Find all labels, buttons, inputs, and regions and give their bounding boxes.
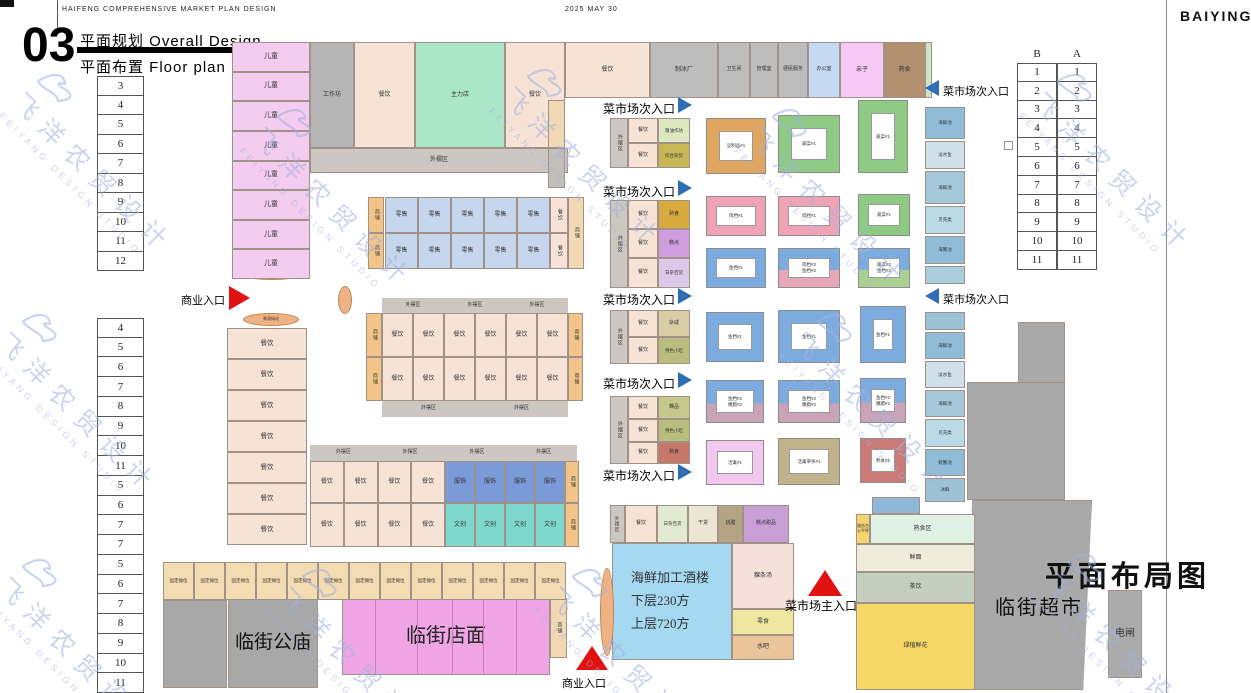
retail-grid-cell: 零售	[385, 197, 418, 233]
poultry-stall: 活禽#1	[706, 440, 764, 485]
fish-stall: 鱼档#1	[778, 310, 840, 363]
dining-column-cell: 餐饮	[227, 390, 307, 421]
meat-stall-counter: 肉档#1	[716, 206, 756, 226]
children-shop-column-cell: 儿童	[232, 190, 310, 220]
left-table-bottom-row: 4	[97, 318, 144, 338]
retail-grid-cell: 零售	[418, 233, 451, 269]
shop-divider	[452, 599, 453, 674]
street-temple: 临街公庙	[228, 598, 318, 688]
left-table-bottom-row: 11	[97, 673, 144, 693]
fixed-stall-row-cell: 固定摊位	[287, 562, 318, 600]
freshwater-fish-tank: 淡水鱼	[925, 361, 965, 388]
left-table-bottom-row: 8	[97, 397, 144, 417]
market-sub-entrance-label: 菜市场次入口	[943, 291, 1009, 307]
fixed-stall-row-cell: 固定摊位	[535, 562, 566, 600]
fish-cured-stall-label: 腌腊#2	[876, 401, 890, 407]
seafood-tank: 海鲜池	[925, 332, 965, 359]
cultural-creative-grid-cell: 文创	[475, 503, 505, 547]
seafood-restaurant: 海鲜加工酒楼下层230方上层720方	[612, 543, 732, 660]
parent-child: 亲子	[840, 42, 884, 98]
dining: 餐饮	[628, 419, 658, 442]
freshwater-fish-tank: 淡水鱼	[925, 141, 965, 169]
market-sub-entrance-label: 菜市场次入口	[603, 375, 675, 392]
outdoor-area: 外摆区	[610, 118, 628, 168]
restroom: 卫生间	[718, 42, 750, 98]
utility	[548, 148, 565, 188]
left-table-bottom-row: 6	[97, 357, 144, 377]
fish-stall: 鱼档#1	[860, 306, 906, 363]
shop-booth-label: 商铺	[573, 227, 579, 239]
dining-grid-mid-cell: 餐饮	[475, 313, 506, 357]
market-sub-entrance-arrow	[678, 372, 692, 388]
vegetable-fish-stall: 蔬菜#2鱼档#2	[858, 248, 910, 288]
shop-booth: 商铺	[568, 313, 583, 357]
tofu-stall-label: 豆制品#1	[727, 143, 746, 149]
feiyang-logo-icon	[17, 545, 72, 600]
vegetable-stall-label: 蔬菜#1	[802, 141, 816, 147]
outdoor-strip-cell: 外摆区	[506, 298, 568, 313]
right-table-cell: 3	[1057, 101, 1097, 120]
dining: 餐饮	[628, 442, 658, 464]
dining-grid-low1-cell: 餐饮	[411, 461, 445, 503]
vegetable-stall: 蔬菜#1	[858, 100, 908, 173]
convenience-service: 便民服务	[778, 42, 808, 98]
dining-grid-mid-cell: 餐饮	[506, 313, 537, 357]
dining-label: 餐饮	[556, 209, 562, 221]
workshop: 工作坊	[310, 42, 354, 148]
left-table-bottom-row: 6	[97, 575, 144, 595]
dining-grid-low1-cell: 餐饮	[378, 461, 412, 503]
crab-tank: 海蟹池	[925, 236, 965, 264]
outdoor-strip-cell: 外摆区	[377, 445, 444, 461]
dining-grid-mid-cell: 餐饮	[537, 313, 568, 357]
shop-divider	[483, 599, 484, 674]
daily-goods: 日杂百货	[658, 258, 690, 288]
fresh-noodles: 鲜面	[856, 544, 975, 572]
dining-column-cell: 餐饮	[227, 328, 307, 359]
apparel-grid-cell: 服饰	[535, 461, 565, 503]
left-table-bottom-row: 8	[97, 614, 144, 634]
outdoor-area: 外摆区	[610, 505, 625, 543]
supermarket-mid	[967, 382, 1065, 500]
fixed-stall-row-cell: 固定摊位	[411, 562, 442, 600]
right-table-cell: 10	[1057, 232, 1097, 251]
meat-fish-stall-counter: 肉档#2鱼档#2	[788, 258, 830, 278]
children-shop-column-cell: 儿童	[232, 249, 310, 279]
right-table-cell: 2	[1017, 82, 1057, 101]
retail-grid-cell: 零售	[418, 197, 451, 233]
dining: 餐饮	[628, 118, 658, 143]
shop-booth-label: 商铺	[569, 519, 575, 531]
dining-grid-mid-cell: 餐饮	[444, 357, 475, 401]
cooked-food: 熟食	[658, 200, 690, 229]
left-table-bottom-row: 7	[97, 535, 144, 555]
fixed-stall-row-cell: 固定摊位	[225, 562, 256, 600]
poultry-stall-counter: 活禽#1	[717, 451, 753, 474]
floor-plan-slide: HAIFENG COMPREHENSIVE MARKET PLAN DESIGN…	[0, 0, 1251, 693]
retail-grid-cell: 零售	[385, 233, 418, 269]
outdoor-area: 外摆区	[610, 396, 628, 464]
fixed-stall-row-cell: 固定摊位	[194, 562, 225, 600]
fish-cured-stall-counter: 鱼档#2腌腊#2	[788, 390, 830, 413]
dining: 餐饮	[628, 200, 658, 229]
vegetable-stall-counter: 蔬菜#1	[791, 128, 827, 160]
shellfish-tank: 贝壳类	[925, 419, 965, 447]
shop-booth-label: 商铺	[373, 209, 379, 221]
market-sub-entrance-label: 菜市场次入口	[603, 183, 675, 200]
dining-column-cell: 餐饮	[227, 514, 307, 545]
street-supermarket-label: 临街超市	[995, 592, 1083, 618]
outdoor-area: 外摆区	[310, 148, 568, 173]
seafood-restaurant-label: 海鲜加工酒楼	[631, 571, 709, 586]
dessert-shop: 糕点甜品	[743, 505, 789, 543]
left-table-top-row: 5	[97, 115, 144, 135]
shop-booth-label: 商铺	[371, 329, 377, 341]
shop-booth: 商铺	[366, 313, 382, 357]
outdoor-strip-cell: 外摆区	[444, 445, 511, 461]
dining-grid-low2-cell: 餐饮	[411, 503, 445, 547]
market-sub-entrance-label: 菜市场次入口	[603, 291, 675, 308]
cooked-food-stall-label: 熟食#1	[876, 458, 890, 464]
children-shop-column-cell: 儿童	[232, 72, 310, 102]
dining-grid-mid-cell: 餐饮	[506, 357, 537, 401]
right-table-header: B	[1017, 45, 1057, 62]
feiyang-logo-icon	[17, 300, 72, 355]
dining-grid-low2-cell: 餐饮	[310, 503, 344, 547]
left-table-bottom-row: 10	[97, 654, 144, 674]
meat-stall: 肉档#1	[706, 196, 766, 236]
outdoor-strip-cell: 外摆区	[310, 445, 377, 461]
fish-stall-counter: 鱼档#1	[791, 323, 827, 350]
vegetable-stall-counter: 蔬菜#1	[871, 113, 895, 160]
left-table-top-row: 9	[97, 193, 144, 213]
shop-divider	[417, 599, 418, 674]
market-sub-entrance-arrow	[925, 80, 939, 96]
right-table-cell: 8	[1017, 195, 1057, 214]
fixed-stall-row-cell: 固定摊位	[473, 562, 504, 600]
retail-grid-cell: 零售	[517, 233, 550, 269]
commercial-entrance-label: 商业入口	[562, 675, 606, 691]
left-table-top-row: 3	[97, 76, 144, 96]
dining-grid-mid-cell: 餐饮	[537, 357, 568, 401]
roast-meats: 烧腊	[718, 505, 743, 543]
meat-stall: 肉档#1	[778, 196, 840, 236]
right-table-header: A	[1057, 45, 1097, 62]
dining: 餐饮	[628, 258, 658, 288]
dining: 餐饮	[565, 42, 650, 98]
retail-grid-cell: 零售	[451, 197, 484, 233]
legend-box	[1004, 141, 1013, 150]
market-sub-entrance-label: 菜市场次入口	[603, 100, 675, 117]
ice-room: 制冰厂	[650, 42, 718, 98]
market-sub-entrance-arrow	[678, 464, 692, 480]
left-table-bottom-row: 10	[97, 436, 144, 456]
shop-booth-label: 商铺	[573, 329, 579, 341]
cultural-creative-grid-cell: 文创	[505, 503, 535, 547]
fixed-stall-row-cell: 固定摊位	[504, 562, 535, 600]
outdoor-area: 外摆区	[610, 310, 628, 364]
right-table-cell: 1	[1017, 63, 1057, 82]
feiyang-logo-icon	[32, 60, 87, 115]
retail-grid-cell: 零售	[484, 233, 517, 269]
street-shops: 临街店面	[342, 598, 550, 675]
office: 办公室	[808, 42, 840, 98]
meat-stall-label: 肉档#1	[802, 213, 816, 219]
vegetable-stall: 蔬菜#1	[778, 115, 840, 173]
right-table-cell: 1	[1057, 63, 1097, 82]
fish-cured-stall: 鱼档#2腌腊#2	[860, 378, 906, 423]
shop-booth: 商铺	[568, 197, 584, 269]
left-table-bottom-row: 11	[97, 456, 144, 476]
outdoor-area-label: 外摆区	[615, 516, 620, 533]
market-sub-entrance-label: 菜市场次入口	[943, 83, 1009, 99]
shop-booth: 商铺	[568, 357, 583, 401]
dining: 餐饮	[550, 197, 568, 233]
fixed-stall-row-cell: 固定摊位	[256, 562, 287, 600]
meat-stall-counter: 肉档#1	[788, 206, 830, 226]
right-table-cell: 9	[1057, 213, 1097, 232]
commercial-entrance-arrow	[229, 286, 250, 310]
apparel-grid-cell: 服饰	[505, 461, 535, 503]
fish-cured-stall-label: 腌腊#2	[802, 402, 816, 408]
crab-tank: 螃蟹池	[925, 449, 965, 476]
outdoor-area-label: 外摆区	[616, 328, 622, 346]
layout-diagram-title: 平面布局图	[1045, 556, 1210, 592]
fish-stall: 鱼档#1	[706, 312, 764, 362]
right-table-cell: 7	[1017, 176, 1057, 195]
plants-flowers: 绿植鲜花	[856, 603, 975, 690]
outdoor-strip-cell: 外摆区	[444, 298, 506, 313]
outdoor-area-label: 外摆区	[616, 421, 622, 439]
cultural-creative-grid-cell: 文创	[535, 503, 565, 547]
dining: 餐饮	[628, 337, 658, 364]
market-sub-entrance-arrow	[678, 97, 692, 113]
shop-booth: 商铺	[368, 197, 384, 233]
retail-grid-cell: 零售	[451, 233, 484, 269]
outdoor-area-label: 外摆区	[616, 134, 622, 152]
outdoor-area: 外摆区	[610, 200, 628, 288]
watermark-cn: 飞洋农贸设计	[6, 84, 184, 262]
cooked-food-area: 熟食区	[870, 514, 975, 544]
cultural-creative-grid-cell: 文创	[445, 503, 475, 547]
grain-oil-workshop: 粮油作坊	[658, 118, 690, 143]
left-table-top-row: 6	[97, 135, 144, 155]
dining-column-cell: 餐饮	[227, 359, 307, 390]
dining-column-cell: 餐饮	[227, 421, 307, 452]
dining-grid-mid-cell: 餐饮	[382, 357, 413, 401]
vegetable-stall-label: 蔬菜#1	[876, 134, 890, 140]
market-main-entrance-label: 菜市场主入口	[785, 597, 857, 614]
right-table-cell: 6	[1017, 157, 1057, 176]
daily-goods: 日杂百货	[657, 505, 688, 543]
fish-cured-stall-counter: 鱼档#2腌腊#2	[716, 390, 754, 413]
vegetable-fish-stall-counter: 蔬菜#2鱼档#2	[868, 258, 900, 278]
service-desk: 服务台公平秤	[856, 514, 870, 544]
fish-stall-counter: 鱼档#1	[718, 324, 752, 350]
left-table-bottom-row: 7	[97, 377, 144, 397]
fixed-stall-row-cell: 固定摊位	[163, 562, 194, 600]
children-shop-column-cell: 儿童	[232, 161, 310, 191]
left-table-bottom-row: 5	[97, 476, 144, 496]
anchor-store: 主力店	[415, 42, 505, 148]
fish-cured-stall-counter: 鱼档#2腌腊#2	[871, 389, 895, 412]
left-table-top-row: 12	[97, 252, 144, 272]
right-table-cell: 10	[1017, 232, 1057, 251]
dining-label: 餐饮	[556, 245, 562, 257]
management-room: 管理室	[750, 42, 778, 98]
fish-stall-label: 鱼档#1	[729, 265, 743, 271]
apparel-grid-cell: 服饰	[475, 461, 505, 503]
left-table-top-row: 4	[97, 96, 144, 116]
right-table-cell: 11	[1017, 251, 1057, 270]
ice-fresh-tank: 冰鲜	[925, 478, 965, 502]
right-table-cell: 5	[1017, 138, 1057, 157]
dining: 餐饮	[550, 233, 568, 269]
poultry-stall-label: 活禽#1	[728, 460, 742, 466]
left-table-top-row: 8	[97, 174, 144, 194]
water-bar: 水吧	[732, 635, 794, 660]
fish-cured-stall-label: 腌腊#2	[728, 402, 742, 408]
fixed-stall-row-cell: 固定摊位	[349, 562, 380, 600]
dining: 餐饮	[628, 229, 658, 258]
poultry-slaughter-stall: 活禽宰杀#1	[778, 438, 840, 485]
shop-booth: 商铺	[368, 233, 384, 269]
seafood-tank: 海鲜池	[925, 171, 965, 204]
left-table-bottom-row: 6	[97, 496, 144, 516]
right-table-cell: 11	[1057, 251, 1097, 270]
fixed-stall-row-cell: 固定摊位	[318, 562, 349, 600]
dry-goods: 干货	[688, 505, 718, 543]
right-table-cell: 4	[1057, 119, 1097, 138]
dining: 餐饮	[628, 143, 658, 168]
left-table-bottom-row: 5	[97, 555, 144, 575]
fish-stall-counter: 鱼档#1	[873, 319, 893, 350]
dining: 餐饮	[354, 42, 415, 148]
children-shop-column-cell: 儿童	[232, 42, 310, 72]
poultry-slaughter-stall-label: 活禽宰杀#1	[797, 459, 820, 465]
local-snacks: 特色小吃	[658, 419, 690, 442]
landscape-green: 景观绿化	[243, 313, 299, 326]
left-table-top-row: 10	[97, 213, 144, 233]
vegetable-stall-label: 蔬菜#1	[877, 212, 891, 218]
shop-booth-label: 商铺	[569, 476, 575, 488]
shop-divider	[516, 599, 517, 674]
left-table-top-row: 7	[97, 154, 144, 174]
commercial-entrance-label: 商业入口	[181, 292, 225, 308]
dining-grid-mid-cell: 餐饮	[382, 313, 413, 357]
shop-booth-label: 商铺	[371, 373, 377, 385]
commercial-entrance-arrow	[576, 646, 608, 670]
outdoor-strip-cell: 外摆区	[475, 401, 568, 417]
seafood-restaurant-label: 上层720方	[631, 617, 690, 632]
dining-grid-mid-cell: 餐饮	[413, 357, 444, 401]
outdoor-area-label: 外摆区	[616, 235, 622, 253]
shop-booth-label: 商铺	[573, 373, 579, 385]
supermarket-upper	[1018, 322, 1065, 384]
children-shop-column-cell: 儿童	[232, 220, 310, 250]
fixed-stall-row-cell: 固定摊位	[442, 562, 473, 600]
market-sub-entrance-arrow	[678, 180, 692, 196]
dining-grid-mid-cell: 餐饮	[413, 313, 444, 357]
pickles: 杂咸	[658, 310, 690, 337]
dining-column-cell: 餐饮	[227, 452, 307, 483]
dining-grid-low2-cell: 餐饮	[344, 503, 378, 547]
vegetable-stall-counter: 蔬菜#1	[868, 204, 900, 226]
watermark-en: FEIYANG DESIGN STUDIO	[777, 351, 937, 511]
booth-label: 商铺	[556, 622, 562, 634]
pastry: 糕点	[658, 229, 690, 258]
seafood-restaurant-label: 下层230方	[631, 594, 690, 609]
fish-stall-label: 鱼档#1	[728, 334, 742, 340]
booth: 商铺	[550, 598, 567, 658]
seafood-tank: 海鲜池	[925, 107, 965, 139]
left-table-bottom-row: 9	[97, 634, 144, 654]
right-table-cell: 9	[1017, 213, 1057, 232]
market-sub-entrance-arrow	[925, 288, 939, 304]
street-building	[163, 600, 227, 688]
market-sub-entrance-arrow	[678, 288, 692, 304]
dining: 餐饮	[628, 396, 658, 419]
fish-cured-stall: 鱼档#2腌腊#2	[778, 380, 840, 423]
dining-grid-low2-cell: 餐饮	[378, 503, 412, 547]
tank	[925, 266, 965, 284]
outdoor-strip-cell: 外摆区	[510, 445, 577, 461]
dining: 餐饮	[625, 505, 657, 543]
vegetable-stall: 蔬菜#1	[858, 194, 910, 236]
landscape-green	[600, 568, 614, 656]
retail-grid-cell: 零售	[517, 197, 550, 233]
rice-cakes: 粿品	[658, 396, 690, 419]
poultry-slaughter-stall-counter: 活禽宰杀#1	[789, 449, 829, 474]
service-desk-label: 公平秤	[857, 529, 869, 534]
children-shop-column-cell: 儿童	[232, 131, 310, 161]
left-table-top-row: 11	[97, 232, 144, 252]
meat-fish-stall: 肉档#2鱼档#2	[778, 248, 840, 288]
dining-grid-mid-cell: 餐饮	[444, 313, 475, 357]
left-table-bottom-row: 7	[97, 515, 144, 535]
tank	[925, 312, 965, 330]
vegetable-fish-stall-label: 鱼档#2	[877, 268, 891, 274]
left-table-bottom-row: 7	[97, 594, 144, 614]
shop-booth: 商铺	[366, 357, 382, 401]
cooked-food-stall-counter: 熟食#1	[871, 449, 895, 472]
shop-booth-label: 商铺	[373, 245, 379, 257]
cooked-food: 熟食	[658, 442, 690, 464]
fixed-stall-row-cell: 固定摊位	[380, 562, 411, 600]
dining-grid-low1-cell: 餐饮	[344, 461, 378, 503]
cooked-food-stall: 熟食#1	[860, 438, 906, 483]
dining-column-cell: 餐饮	[227, 483, 307, 514]
right-table-cell: 3	[1017, 101, 1057, 120]
left-table-bottom-row: 9	[97, 417, 144, 437]
tofu-stall-counter: 豆制品#1	[719, 131, 753, 161]
outdoor-strip-cell: 外摆区	[382, 298, 444, 313]
fish-stall-counter: 鱼档#1	[716, 258, 756, 278]
general-goods: 综合杂货	[658, 143, 690, 168]
dining-grid-mid-cell: 餐饮	[475, 357, 506, 401]
dining: 餐饮	[628, 310, 658, 337]
fish-stall-label: 鱼档#1	[876, 332, 890, 338]
booth	[548, 100, 565, 148]
right-table-cell: 6	[1057, 157, 1097, 176]
right-table-cell: 5	[1057, 138, 1097, 157]
shop-booth: 商铺	[565, 461, 579, 503]
local-snacks: 特色小吃	[658, 337, 690, 364]
market-main-entrance-arrow	[808, 570, 842, 596]
shop-booth: 商铺	[565, 503, 579, 547]
tea-drinks: 茶饮	[856, 572, 975, 603]
cooked-food: 熟食	[884, 42, 925, 98]
